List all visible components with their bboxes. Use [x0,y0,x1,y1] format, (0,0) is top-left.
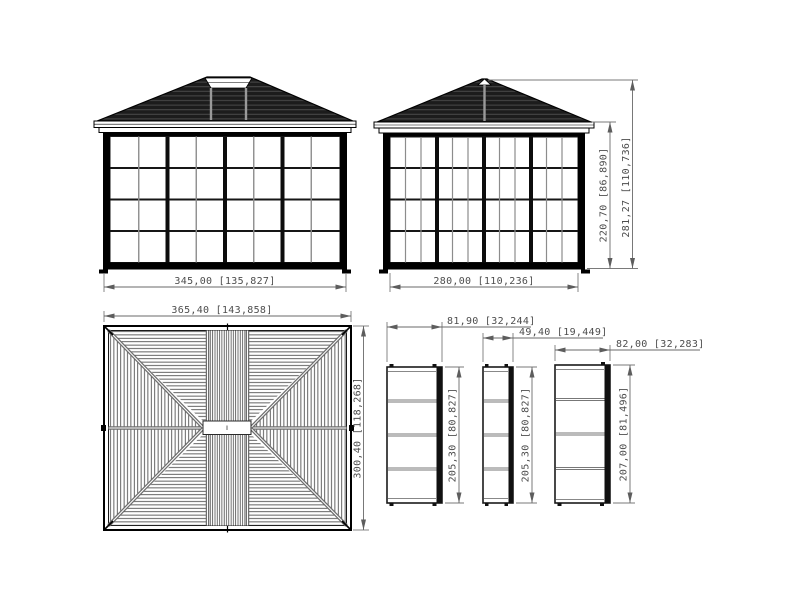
panel-2-width-dimension-label: 49,40 [19,449] [519,327,608,338]
roof-plan-width-dimension-label: 365,40 [143,858] [171,305,272,316]
panel-3-width-dimension-label: 82,00 [32,283] [616,339,705,350]
front-roof-vent [205,78,252,88]
roof-plan-width-dimension: 365,40 [143,858] [104,305,351,322]
panel-1-height-dimension: 205,30 [80,827] [445,367,464,503]
panel-3-height-dimension: 207,00 [81,496] [613,365,635,503]
panel-1-height-dimension-label: 205,30 [80,827] [448,388,459,483]
panel-1-width-dimension-label: 81,90 [32,244] [447,316,536,327]
front-width-dimension-label: 345,00 [135,827] [174,276,275,287]
panel-detail-1 [387,364,442,506]
panel-3-height-dimension-label: 207,00 [81,496] [619,387,630,482]
roof-plan-depth-dimension-label: 300,40 [118,268] [353,377,364,478]
side-corner-post-right [578,133,585,270]
side-elevation-view [374,79,594,274]
panel-2-height-dimension: 205,30 [80,827] [516,367,537,503]
front-elevation-view [94,77,356,274]
panel-detail-2 [483,364,513,506]
side-width-dimension: 280,00 [110,236] [390,273,578,292]
drawing-canvas: 345,00 [135,827] 280,00 [110 [0,0,800,600]
technical-drawing: 345,00 [135,827] 280,00 [110 [0,0,800,600]
side-corner-post-left [383,133,390,270]
panel-2-height-dimension-label: 205,30 [80,827] [521,388,532,483]
side-bottom-rail [383,263,585,270]
front-corner-post-left [103,133,110,270]
roof-plan-view [101,324,354,533]
side-overall-height-dimension-label: 281,27 [110,736] [621,136,632,237]
front-corner-post-right [340,133,347,270]
front-width-dimension: 345,00 [135,827] [104,273,346,292]
panel-3-width-dimension: 82,00 [32,283] [555,339,705,361]
front-bottom-rail [103,263,347,270]
roof-plan-depth-dimension: 300,40 [118,268] [353,326,370,530]
side-wall-height-dimension-label: 220,70 [86,890] [599,148,610,243]
side-width-dimension-label: 280,00 [110,236] [433,276,534,287]
panel-detail-3 [555,362,610,506]
panel-2-width-dimension: 49,40 [19,449] [483,327,608,362]
